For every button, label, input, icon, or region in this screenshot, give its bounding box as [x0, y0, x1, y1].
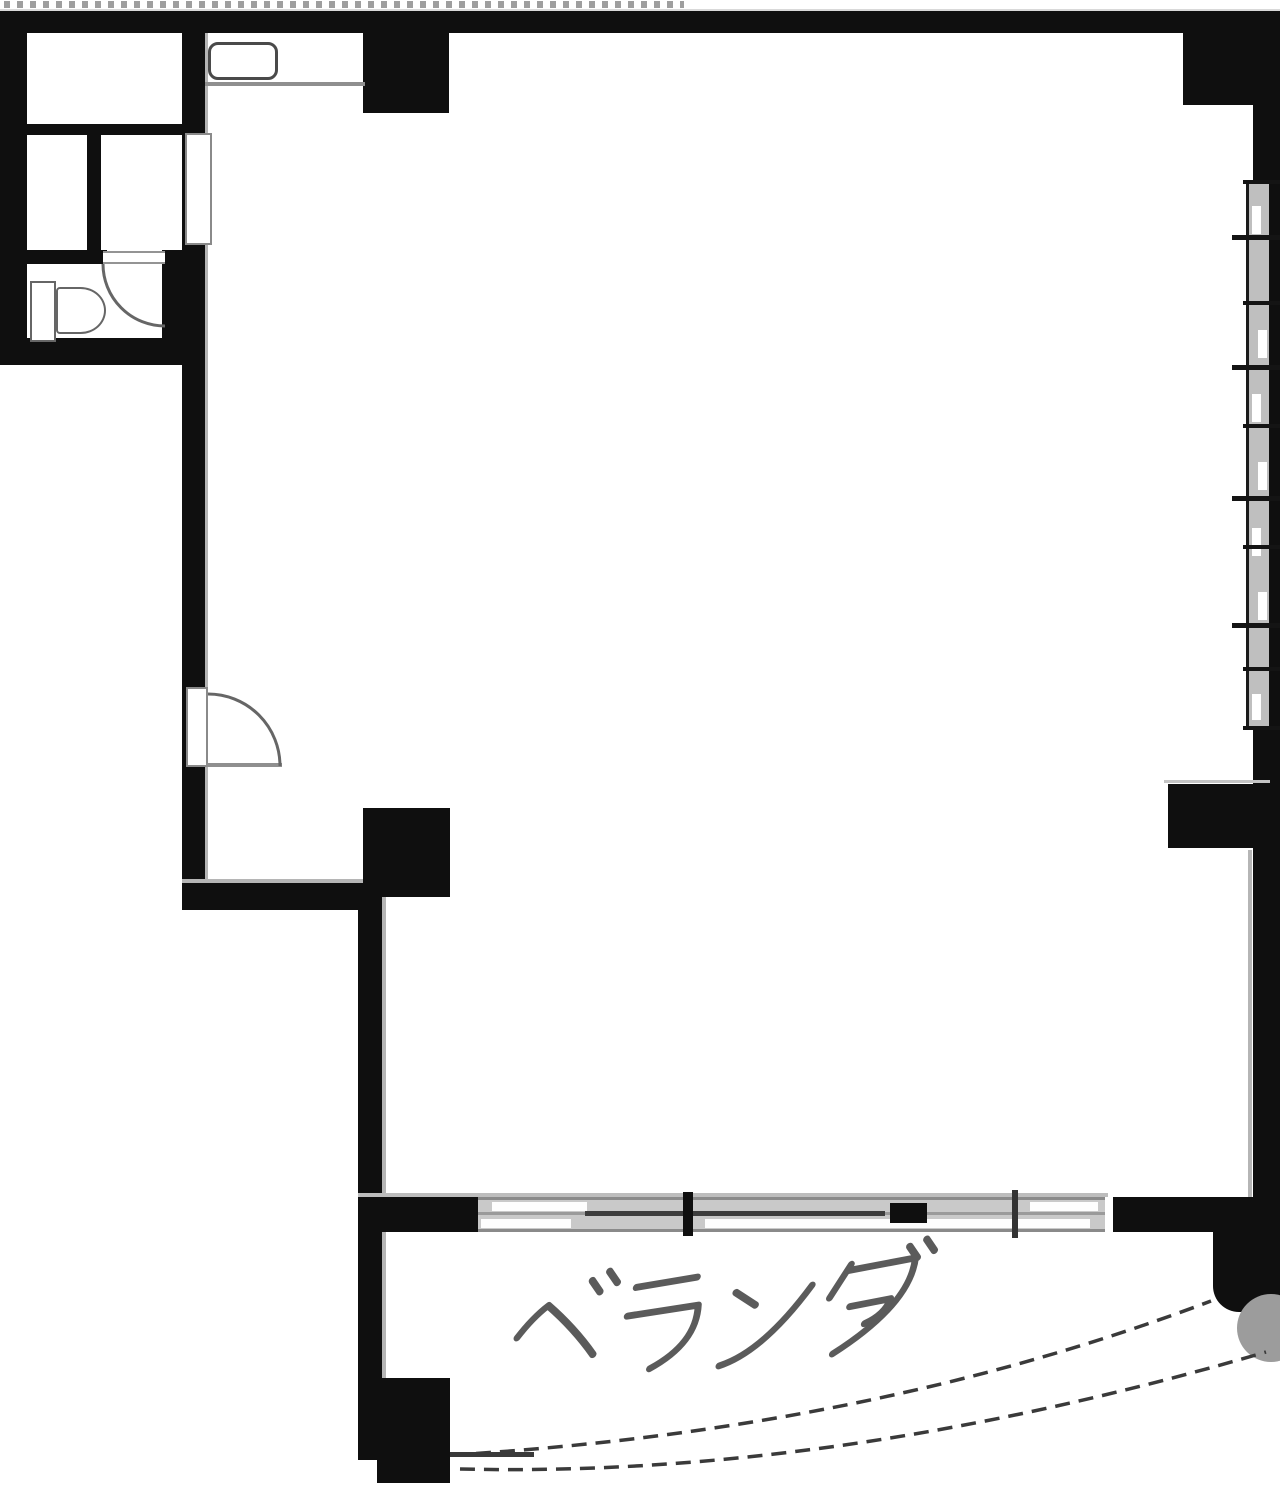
northeast-corner-pillar	[1183, 33, 1280, 105]
right-wall-mid	[1253, 730, 1280, 784]
bathroom-partition-horizontal	[0, 124, 205, 135]
entrance-door-arc	[208, 694, 280, 766]
entrance-door-open-line	[206, 763, 282, 767]
sliding-pane-highlight	[492, 1202, 587, 1211]
left-outer-wall	[0, 11, 27, 365]
sliding-pane-highlight	[481, 1219, 571, 1228]
sliding-door-center-mullion	[683, 1192, 693, 1236]
bathroom-partition-vertical	[87, 124, 101, 264]
window-mullion-tick	[1243, 726, 1280, 730]
kitchen-sink	[208, 42, 278, 80]
window-mullion-tick-long	[1232, 235, 1280, 240]
balcony-edge-line	[450, 1452, 534, 1457]
east-pillar-hairline	[1164, 780, 1270, 783]
balcony-southwest-pillar	[377, 1378, 450, 1483]
west-wall-lower-hairline	[382, 897, 386, 1460]
floor-plan: ベランダ	[0, 0, 1280, 1486]
sliding-door-meeting-stile	[890, 1203, 927, 1223]
toilet-tank	[30, 281, 56, 342]
window-glass-highlight	[1252, 206, 1261, 234]
right-window-outer-wall	[1269, 180, 1280, 730]
window-glass-highlight	[1258, 462, 1267, 490]
kitchen-counter-line	[205, 82, 365, 86]
toilet-bowl	[56, 287, 106, 334]
window-glass-highlight	[1258, 330, 1267, 358]
window-mullion-tick-long	[1232, 623, 1280, 628]
east-pillar	[1168, 784, 1280, 848]
window-glass-highlight	[1252, 694, 1261, 720]
window-mullion-tick	[1243, 545, 1280, 549]
window-glass-highlight	[1252, 528, 1261, 556]
right-wall-lower-hairline	[1248, 850, 1252, 1202]
sliding-door-frame-tick	[1012, 1190, 1018, 1238]
toilet-door-arc	[103, 264, 165, 326]
toilet-room-top-wall	[0, 250, 107, 264]
sliding-door-mid-rail-dark	[585, 1211, 885, 1216]
window-mullion-tick	[1243, 667, 1280, 671]
right-wall-lower	[1253, 848, 1280, 1202]
window-mullion-tick	[1243, 424, 1280, 428]
entry-pillar	[363, 808, 450, 897]
right-window-band	[1246, 180, 1269, 730]
window-glass-highlight	[1258, 592, 1267, 620]
top-wall	[0, 11, 1280, 33]
balcony-label: ベランダ	[496, 1231, 935, 1401]
right-wall-upper	[1253, 105, 1280, 182]
toilet-door-leaf	[103, 251, 165, 264]
kitchen-pillar	[363, 33, 449, 113]
sliding-pane-highlight	[1030, 1202, 1098, 1211]
west-wall-lower	[358, 895, 382, 1460]
window-mullion-tick-long	[1232, 496, 1280, 501]
window-glass-highlight	[1252, 394, 1261, 422]
entrance-door-leaf	[186, 687, 208, 767]
toilet-room-bottom-wall	[0, 338, 205, 365]
entry-bottom-wall	[182, 883, 363, 910]
boundary-dotted-line	[4, 1, 684, 8]
window-mullion-tick-long	[1232, 365, 1280, 370]
washroom-door	[185, 133, 212, 245]
window-mullion-tick	[1243, 180, 1280, 184]
bottom-wall-left-segment	[358, 1197, 478, 1232]
window-mullion-tick	[1243, 301, 1280, 305]
balcony-label-text: ベランダ	[496, 1231, 935, 1401]
